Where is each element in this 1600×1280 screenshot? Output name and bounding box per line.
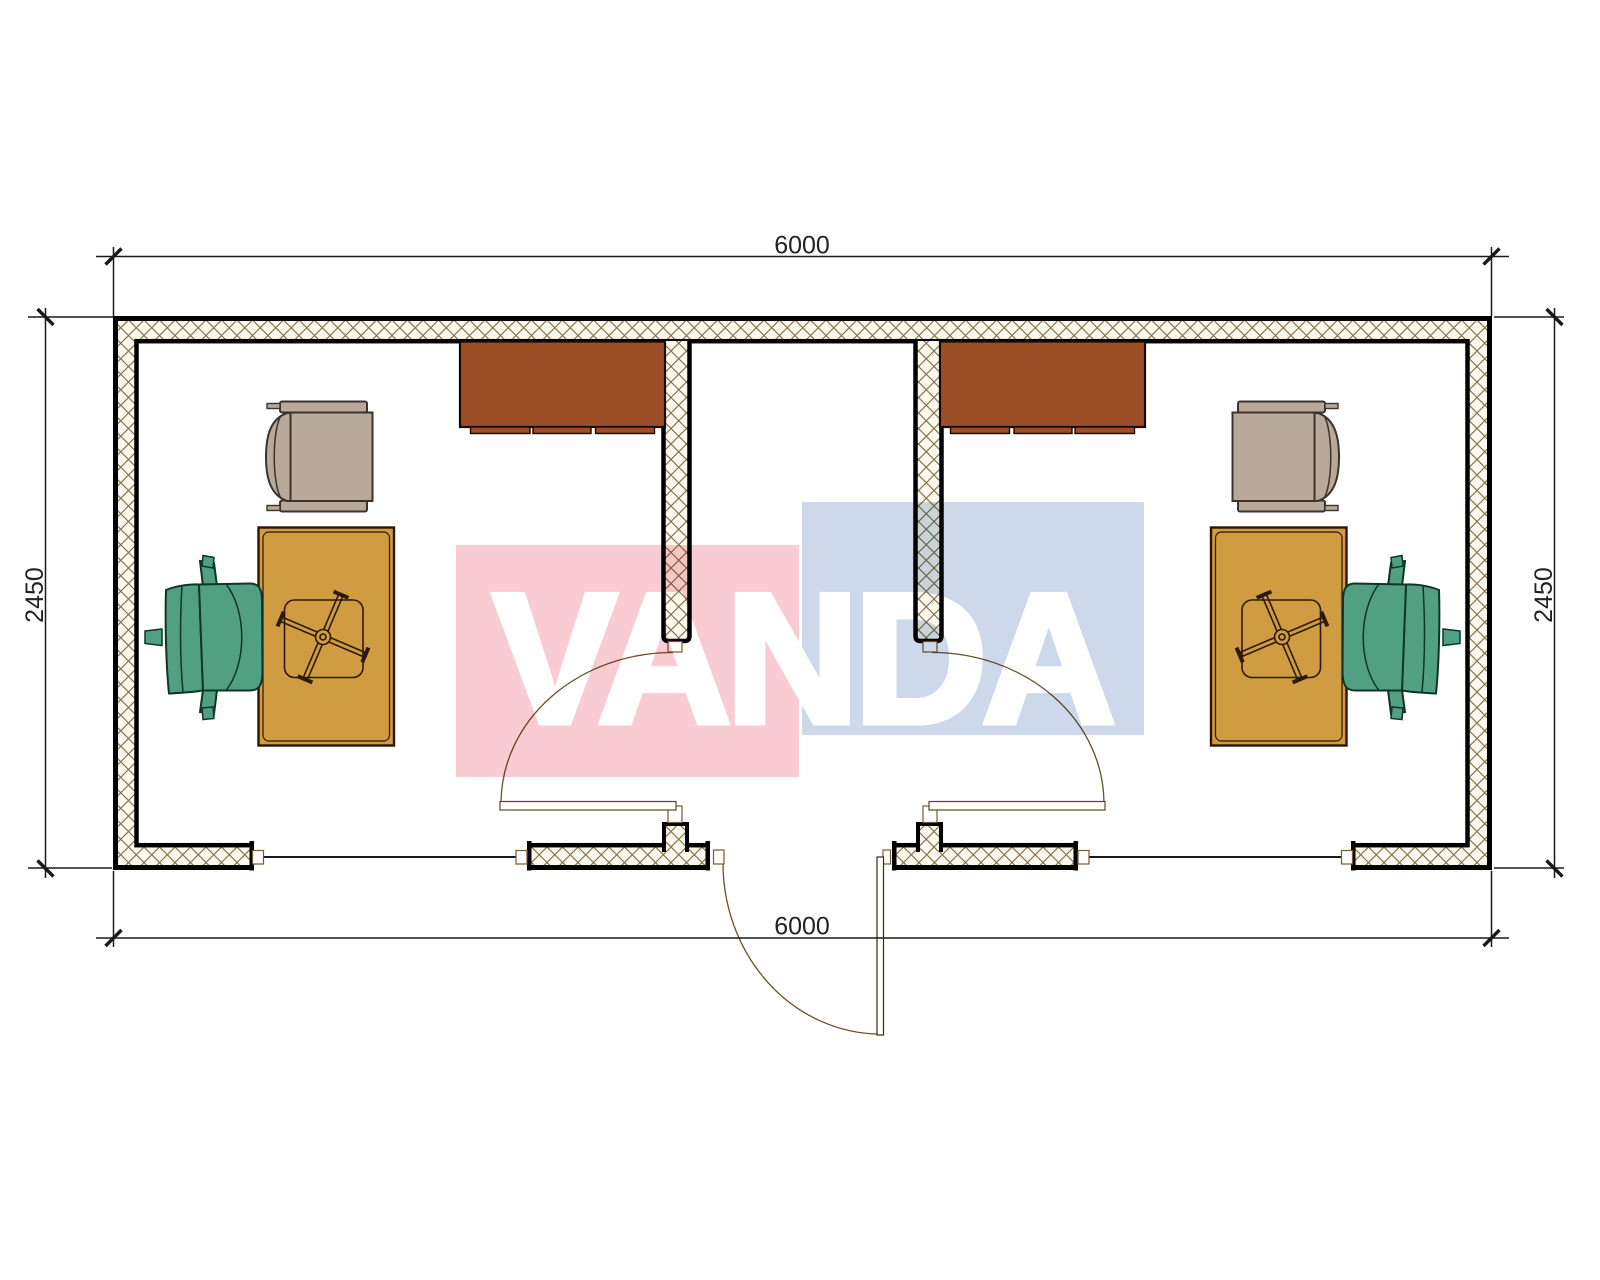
svg-text:2450: 2450 xyxy=(1530,567,1558,623)
svg-text:6000: 6000 xyxy=(774,232,830,260)
svg-text:6000: 6000 xyxy=(774,913,830,941)
svg-text:2450: 2450 xyxy=(21,567,49,623)
